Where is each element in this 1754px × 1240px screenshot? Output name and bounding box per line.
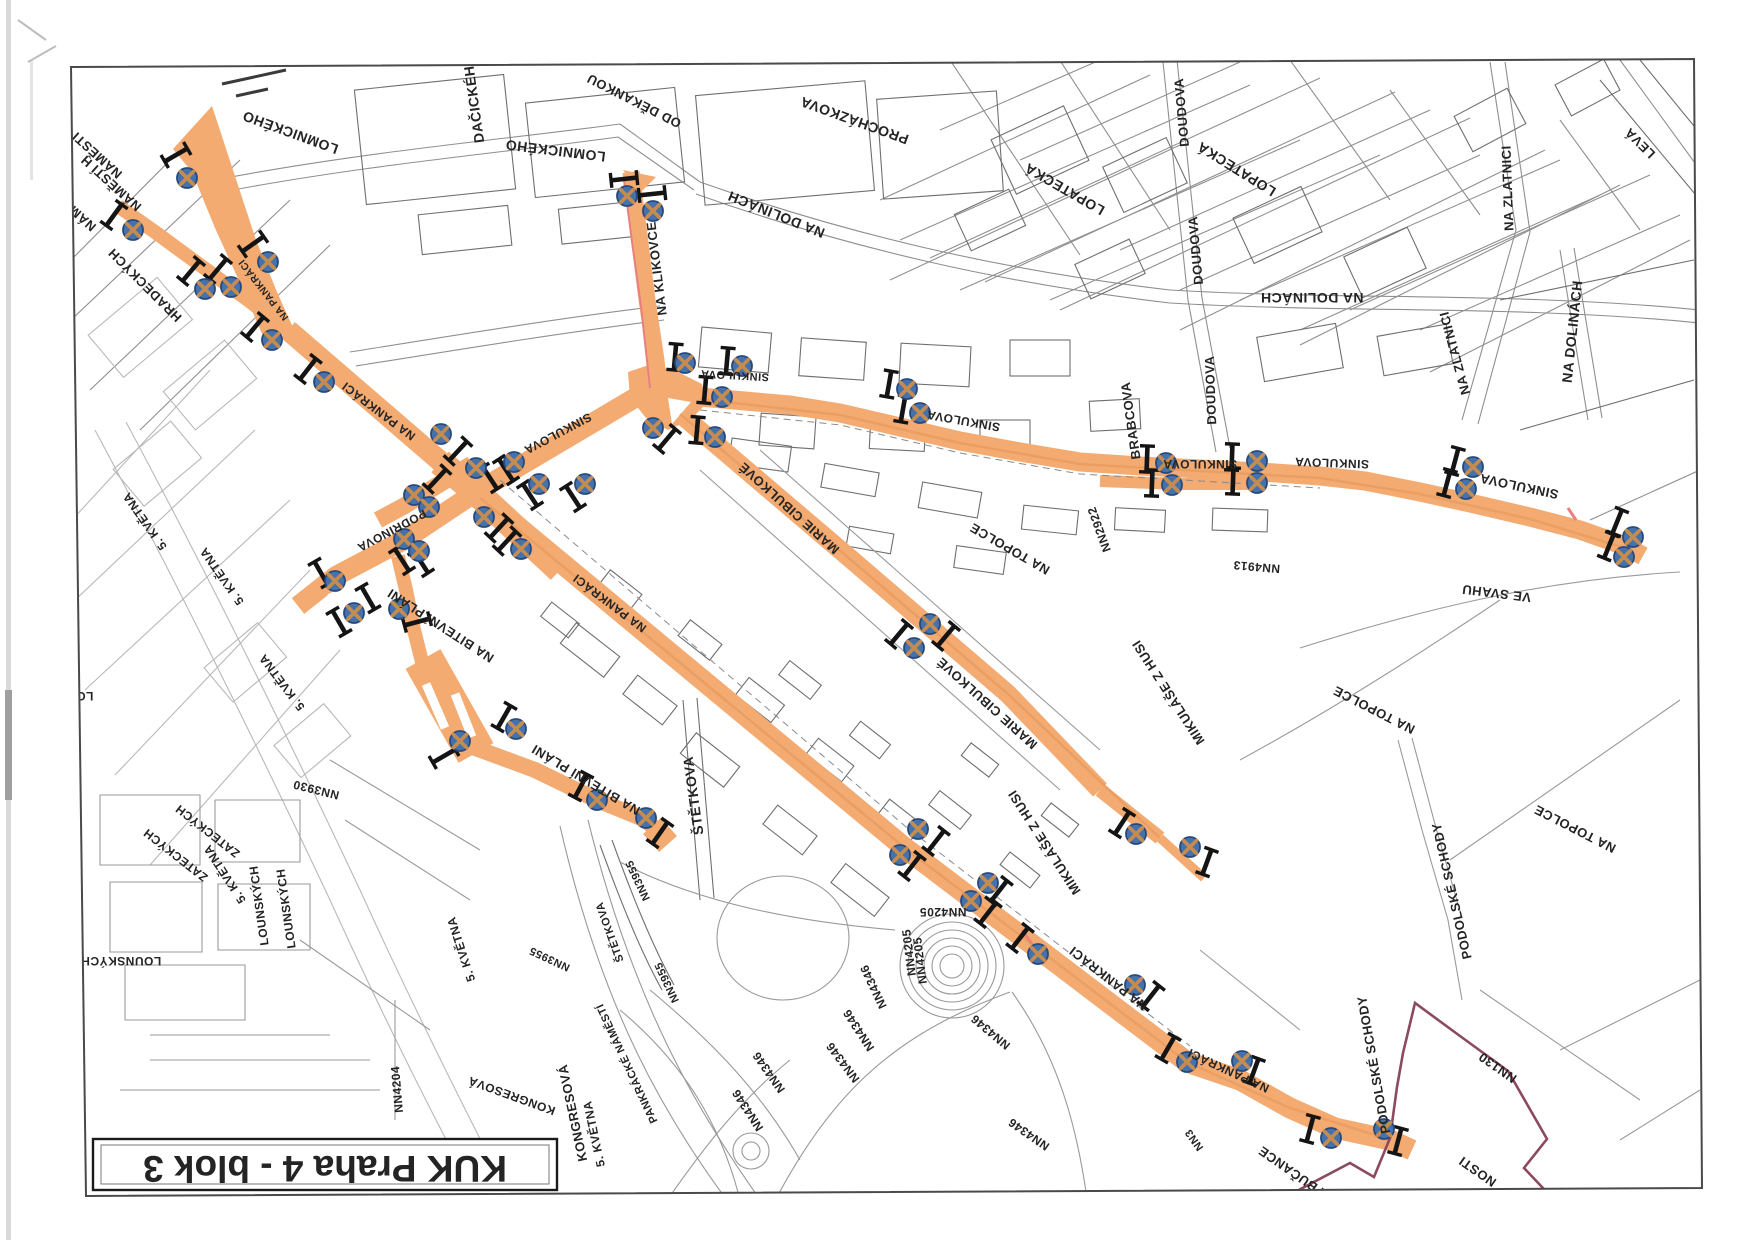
svg-text:DOUDOVA: DOUDOVA (1202, 355, 1219, 425)
svg-text:SINKULOVA: SINKULOVA (1294, 455, 1369, 472)
svg-text:KUK Praha 4 - blok 3: KUK Praha 4 - blok 3 (143, 1148, 507, 1189)
svg-text:NA DOLINÁCH: NA DOLINÁCH (1261, 290, 1364, 306)
svg-text:LOUNSKÝCH: LOUNSKÝCH (81, 954, 162, 969)
svg-text:NN4205: NN4205 (919, 905, 966, 919)
svg-text:NA ZLATNICI: NA ZLATNICI (1499, 145, 1517, 231)
svg-text:SINKULOVA: SINKULOVA (1163, 457, 1237, 471)
